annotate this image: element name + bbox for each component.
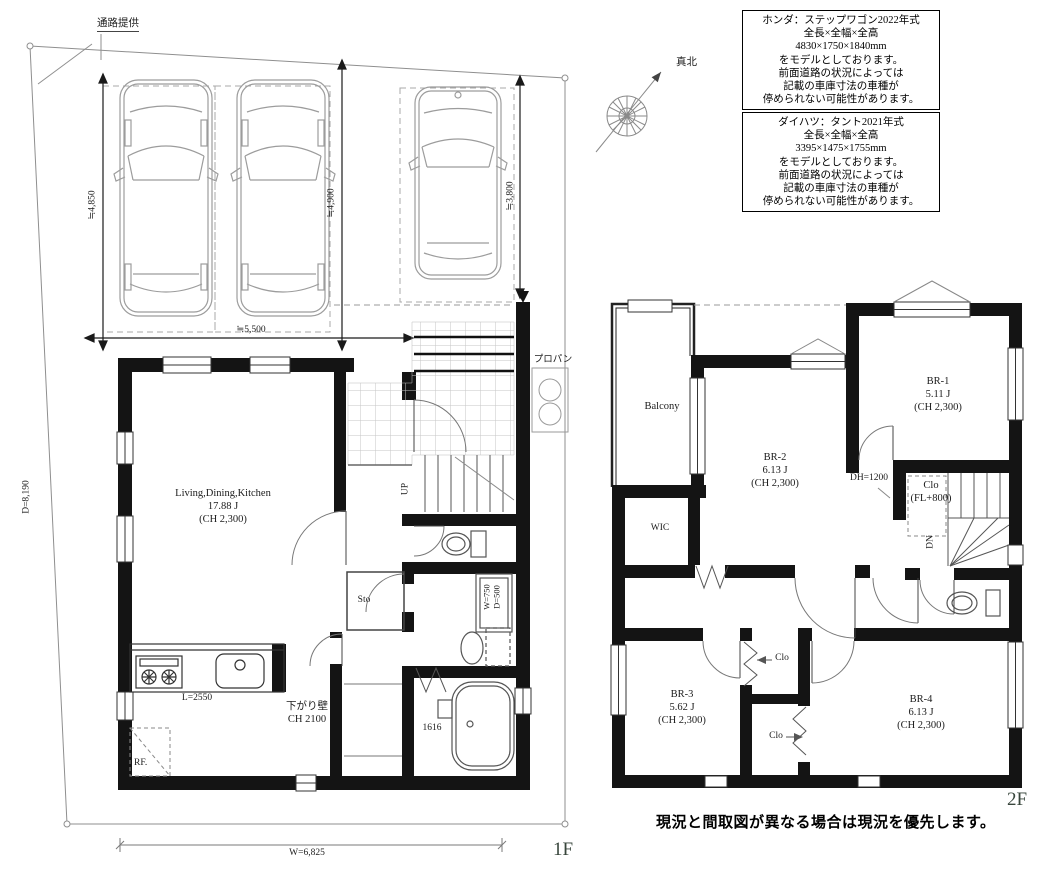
br2-size: 6.13 J xyxy=(751,464,799,477)
note-daihatsu: ダイハツ：タント2021年式 全長×全幅×全高 3395×1475×1755mm… xyxy=(742,112,940,212)
note-daihatsu-line: ダイハツ：タント2021年式 xyxy=(745,116,937,129)
note-daihatsu-line: 3395×1475×1755mm xyxy=(745,142,937,155)
dim-car2-label: ≒4,900 xyxy=(326,188,339,217)
understair-closet-line1: Clo xyxy=(911,479,952,492)
floor2-tag: 2F xyxy=(1007,793,1027,806)
car-tanto xyxy=(409,87,507,279)
br3-label: BR-3 5.62 J (CH 2,300) xyxy=(658,688,706,727)
note-daihatsu-line: 停められない可能性があります。 xyxy=(745,195,937,208)
br2-ch: (CH 2,300) xyxy=(751,477,799,490)
br4-label: BR-4 6.13 J (CH 2,300) xyxy=(897,693,945,732)
br3-name: BR-3 xyxy=(658,688,706,701)
bath-size-label: 1616 xyxy=(423,722,442,735)
floorplan-page: 通路提供 真北 ≒4,850 ≒4,900 ≒3,800 ≒5,500 ホンダ：… xyxy=(0,0,1048,869)
br3-ch: (CH 2,300) xyxy=(658,714,706,727)
fridge-label: RF. xyxy=(134,757,147,770)
balcony-railing xyxy=(612,300,694,487)
width-dim-label: W=6,825 xyxy=(289,847,325,860)
stairs-1f xyxy=(425,455,514,512)
door-height-label: DH=1200 xyxy=(850,472,888,485)
note-honda-line: ホンダ：ステップワゴン2022年式 xyxy=(745,14,937,27)
lowered-wall-label: 下がり壁 CH 2100 xyxy=(286,700,328,726)
true-north-label: 真北 xyxy=(676,56,697,69)
understair-closet-line2: (FL+800) xyxy=(911,492,952,505)
br2-name: BR-2 xyxy=(751,451,799,464)
ldk-name: Living,Dining,Kitchen xyxy=(175,487,271,500)
br4-ch: (CH 2,300) xyxy=(897,719,945,732)
floor1-tag: 1F xyxy=(553,843,573,856)
br1-size: 5.11 J xyxy=(914,388,962,401)
br1-name: BR-1 xyxy=(914,375,962,388)
note-honda-line: 記載の車庫寸法の車種が xyxy=(745,80,937,93)
note-honda-line: 4830×1750×1840mm xyxy=(745,40,937,53)
washbasin-1f xyxy=(461,628,510,666)
br1-ch: (CH 2,300) xyxy=(914,401,962,414)
entrance-porch xyxy=(334,305,514,465)
disclaimer-text: 現況と間取図が異なる場合は現況を優先します。 xyxy=(656,816,996,829)
passage-label: 通路提供 xyxy=(97,17,139,32)
note-daihatsu-line: をモデルとしております。 xyxy=(745,156,937,169)
depth-dim-label: D=8,190 xyxy=(21,480,34,514)
kitchen-counter xyxy=(130,644,284,692)
up-label: UP xyxy=(400,483,413,495)
sto-closet xyxy=(347,572,404,630)
storage-shelves xyxy=(344,684,402,756)
dn-label: DN xyxy=(925,535,938,549)
note-honda-line: をモデルとしております。 xyxy=(745,54,937,67)
note-honda-line: 全長×全幅×全高 xyxy=(745,27,937,40)
understair-closet-label: Clo (FL+800) xyxy=(911,479,952,505)
ldk-size: 17.88 J xyxy=(175,500,271,513)
note-daihatsu-line: 記載の車庫寸法の車種が xyxy=(745,182,937,195)
wic-label: WIC xyxy=(651,522,669,535)
vanity-depth-label: D=500 xyxy=(491,585,504,609)
sto-label: Sto xyxy=(358,594,371,607)
br4-name: BR-4 xyxy=(897,693,945,706)
dim-width-label: ≒5,500 xyxy=(236,324,265,337)
br2-label: BR-2 6.13 J (CH 2,300) xyxy=(751,451,799,490)
propane-tanks xyxy=(532,368,568,432)
propane-label: プロパン xyxy=(534,354,572,367)
car-step-wagon-1 xyxy=(114,80,218,316)
br4-size: 6.13 J xyxy=(897,706,945,719)
stove-icon xyxy=(136,656,182,688)
dim-car3-label: ≒3,800 xyxy=(505,181,518,210)
lowered-wall-line1: 下がり壁 xyxy=(286,700,328,713)
note-honda-line: 前面道路の状況によっては xyxy=(745,67,937,80)
lowered-wall-line2: CH 2100 xyxy=(286,713,328,726)
ldk-label: Living,Dining,Kitchen 17.88 J (CH 2,300) xyxy=(175,487,271,526)
parking-area xyxy=(85,60,524,350)
br1-label: BR-1 5.11 J (CH 2,300) xyxy=(914,375,962,414)
sink-icon xyxy=(216,654,264,688)
note-honda-line: 停められない可能性があります。 xyxy=(745,93,937,106)
counter-length-label: L=2550 xyxy=(182,692,212,705)
dim-car1-label: ≒4,850 xyxy=(87,190,100,219)
br3-size: 5.62 J xyxy=(658,701,706,714)
note-daihatsu-line: 前面道路の状況によっては xyxy=(745,169,937,182)
toilet-2f xyxy=(947,590,1000,616)
toilet-1f xyxy=(442,531,486,557)
dimension-lines xyxy=(85,60,524,350)
balcony-label: Balcony xyxy=(645,400,680,413)
car-step-wagon-2 xyxy=(231,80,335,316)
ldk-ch: (CH 2,300) xyxy=(175,513,271,526)
closet-b-label: Clo xyxy=(769,730,783,743)
note-honda: ホンダ：ステップワゴン2022年式 全長×全幅×全高 4830×1750×184… xyxy=(742,10,940,110)
closet-a-label: Clo xyxy=(775,652,789,665)
compass-icon xyxy=(596,72,661,152)
note-daihatsu-line: 全長×全幅×全高 xyxy=(745,129,937,142)
bathtub xyxy=(438,682,514,770)
parking-stalls xyxy=(103,86,514,332)
